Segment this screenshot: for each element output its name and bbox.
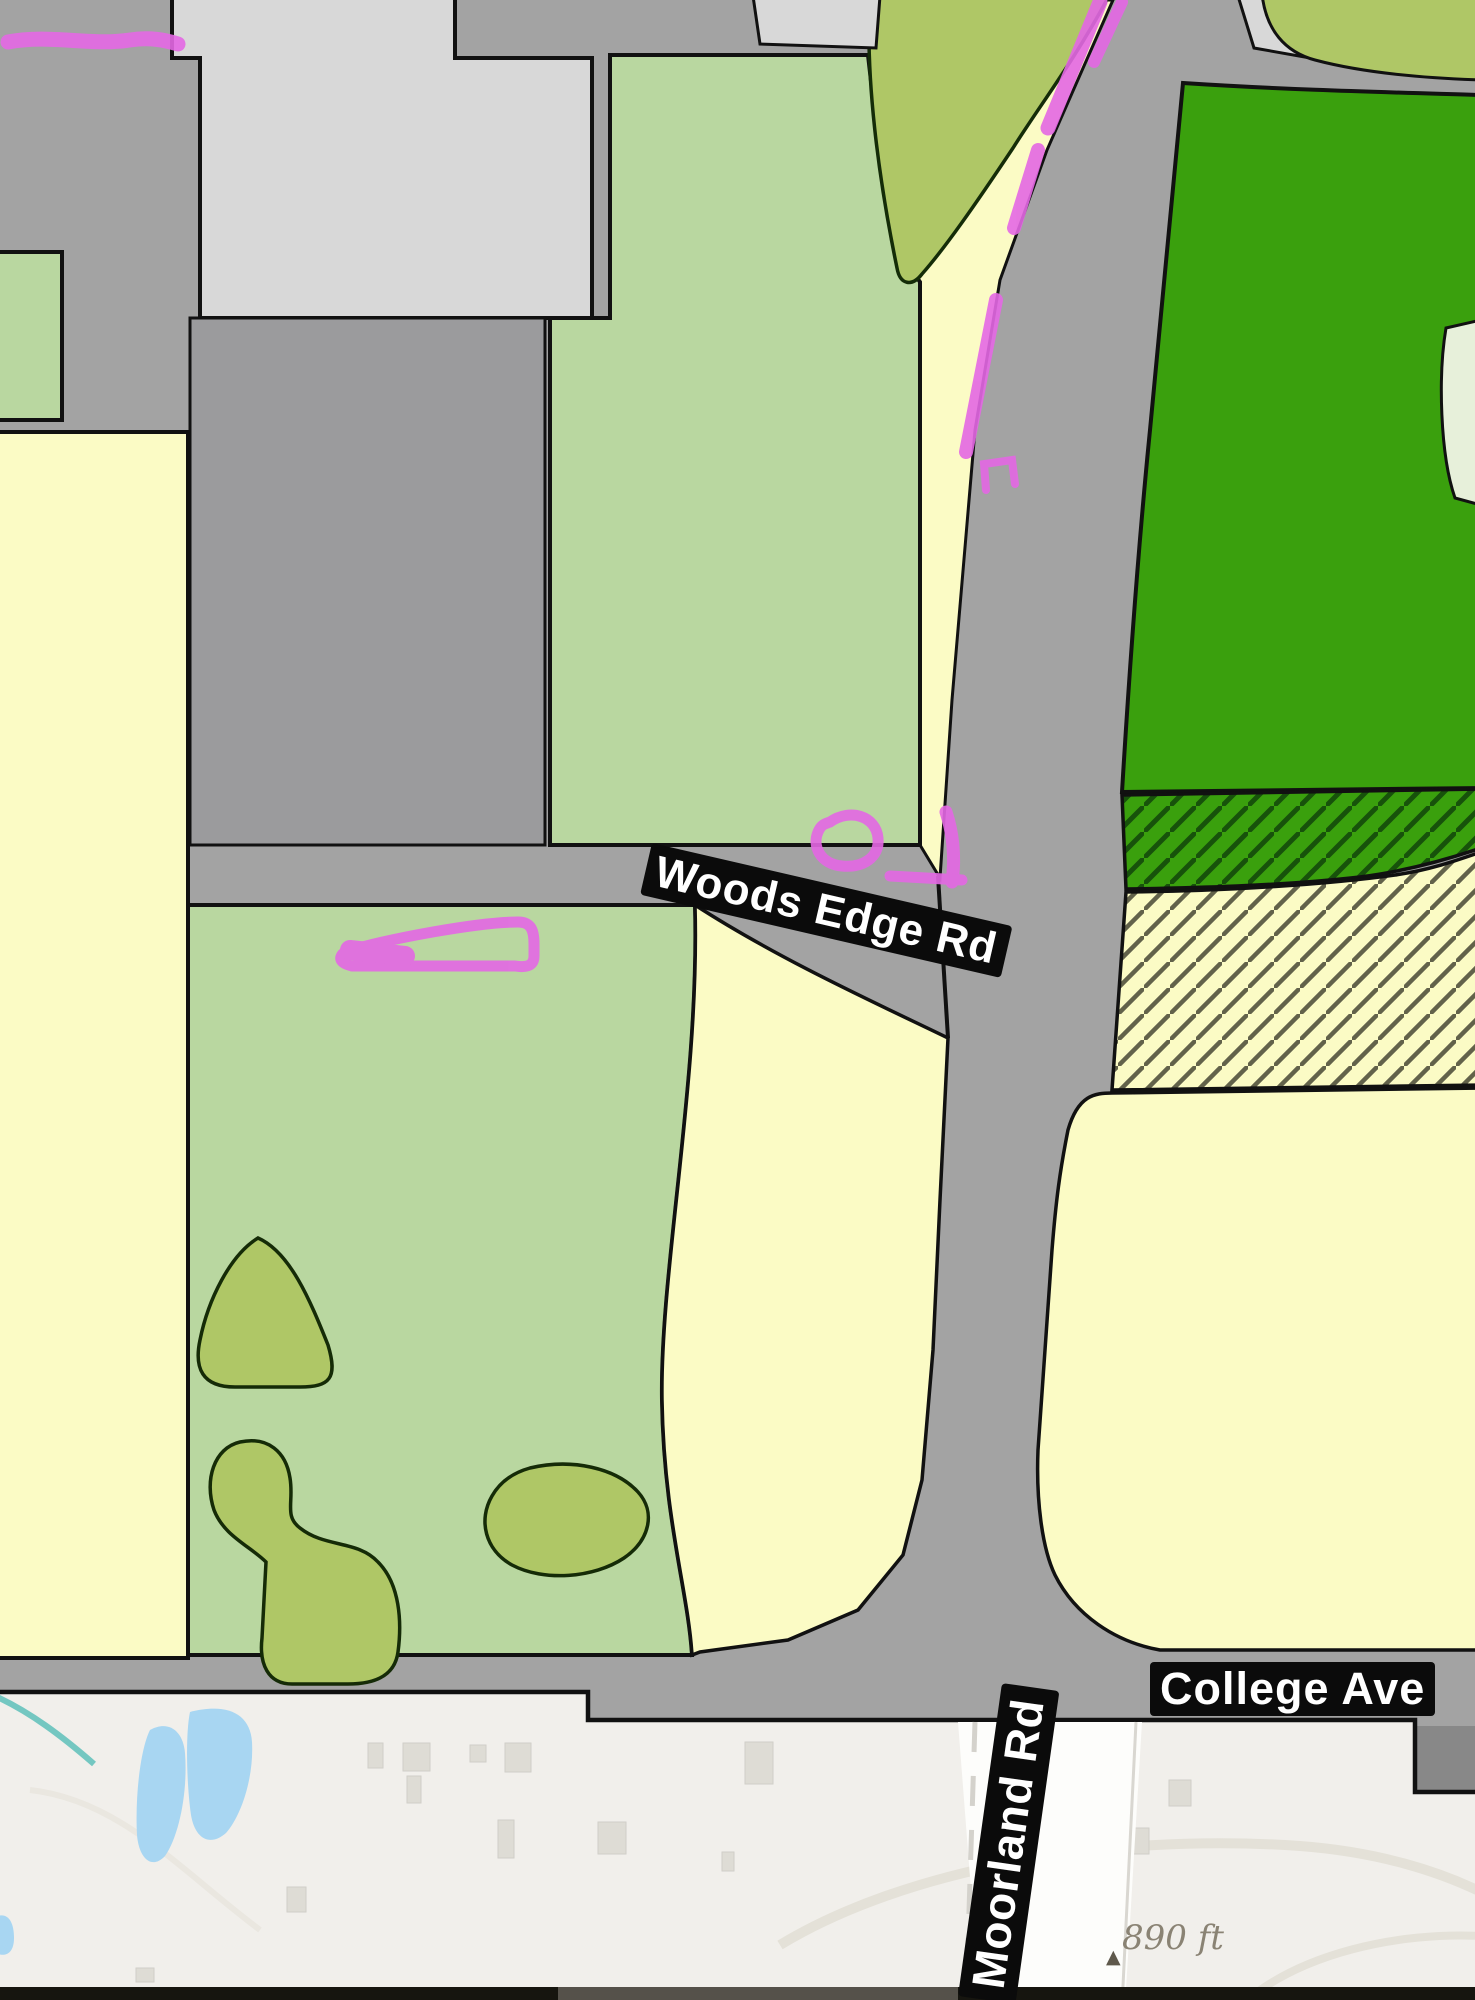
parcel-yellow-west [0, 432, 188, 1658]
road-label-college-ave: College Ave [1150, 1662, 1435, 1716]
parcel-gray-block [190, 318, 545, 845]
magenta-line-northwest [8, 39, 178, 44]
parcel-light-gray-top-center [753, 0, 880, 48]
map-canvas[interactable]: Woods Edge Rd College Ave Moorland Rd 89… [0, 0, 1475, 2000]
bottom-edge-bar-light [558, 1987, 958, 2000]
parcel-yellow-east [1038, 1088, 1475, 1650]
magenta-wedge-fill [350, 950, 405, 956]
magenta-bar [890, 876, 962, 880]
parcel-light-green-west-sliver [0, 252, 62, 420]
vegetation-blob-3 [485, 1464, 648, 1576]
spot-elevation-text: 890 ft [1122, 1918, 1224, 1958]
magenta-tick [946, 812, 954, 882]
parcel-yellow-center [662, 905, 948, 1655]
summit-triangle-icon: ▲ [1106, 1946, 1121, 1968]
parcel-dark-green [1122, 83, 1475, 792]
